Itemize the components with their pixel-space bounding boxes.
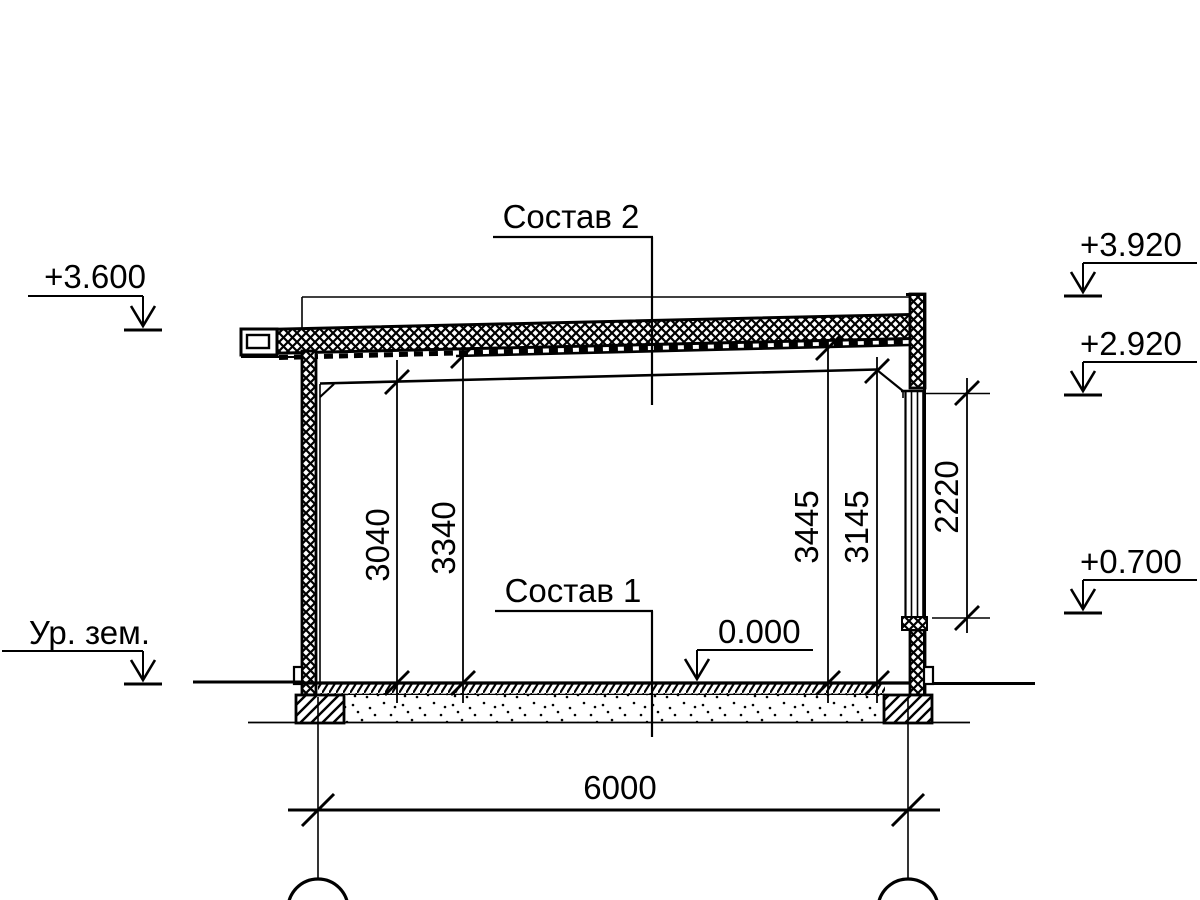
dimension-3445-value: 3445 [788,490,825,563]
label-composition-2: Состав 2 [493,198,653,405]
dimension-6000-value: 6000 [583,769,656,806]
dimension-3145: 3145 [838,357,889,703]
grid-bubble-left [288,879,348,900]
dimension-3040-value: 3040 [359,508,396,581]
elevation-0700-value: +0.700 [1080,543,1182,580]
right-wall-plinth [924,667,933,684]
dimension-3040: 3040 [359,360,409,703]
roof-assembly [241,297,910,397]
dimension-3340: 3340 [425,344,475,703]
sand-base [344,695,885,722]
elevation-3920-value: +3.920 [1080,226,1182,263]
elevation-0000-value: 0.000 [718,613,801,650]
elevation-2920-value: +2.920 [1080,325,1182,362]
drawing-canvas: 6000 3040 3340 3445 3145 2220 +3.600 [0,0,1200,900]
elevation-3600-value: +3.600 [44,258,146,295]
elevation-mark-3920: +3.920 [1064,226,1197,296]
window-glazing [906,391,924,617]
dimension-3145-value: 3145 [838,490,875,563]
elevation-mark-0000: 0.000 [685,613,813,679]
window-sill [902,617,927,630]
ceiling-corner-right [877,370,903,391]
window [901,391,927,630]
dimension-3340-value: 3340 [425,501,462,574]
grid-axis-left [288,697,348,900]
floor-slab [248,683,970,723]
grid-axis-right [878,697,938,900]
floor-screed [318,684,885,695]
elevation-mark-3600: +3.600 [28,258,162,330]
grid-bubble-right [878,879,938,900]
elevation-mark-2920: +2.920 [1064,325,1197,395]
composition-2-text: Состав 2 [503,198,640,235]
foundation-left [296,695,344,723]
left-wall [294,351,320,695]
elevation-mark-ground: Ур. зем. [2,614,162,684]
ceiling-corner-left [320,384,334,397]
section-drawing: 6000 3040 3340 3445 3145 2220 +3.600 [0,0,1200,900]
dimension-2220-value: 2220 [928,460,965,533]
composition-1-text: Состав 1 [505,572,642,609]
dimension-2220: 2220 [925,378,990,633]
elevation-mark-0700: +0.700 [1064,543,1197,613]
ground-level-label: Ур. зем. [29,614,150,651]
dimension-6000: 6000 [288,769,940,826]
